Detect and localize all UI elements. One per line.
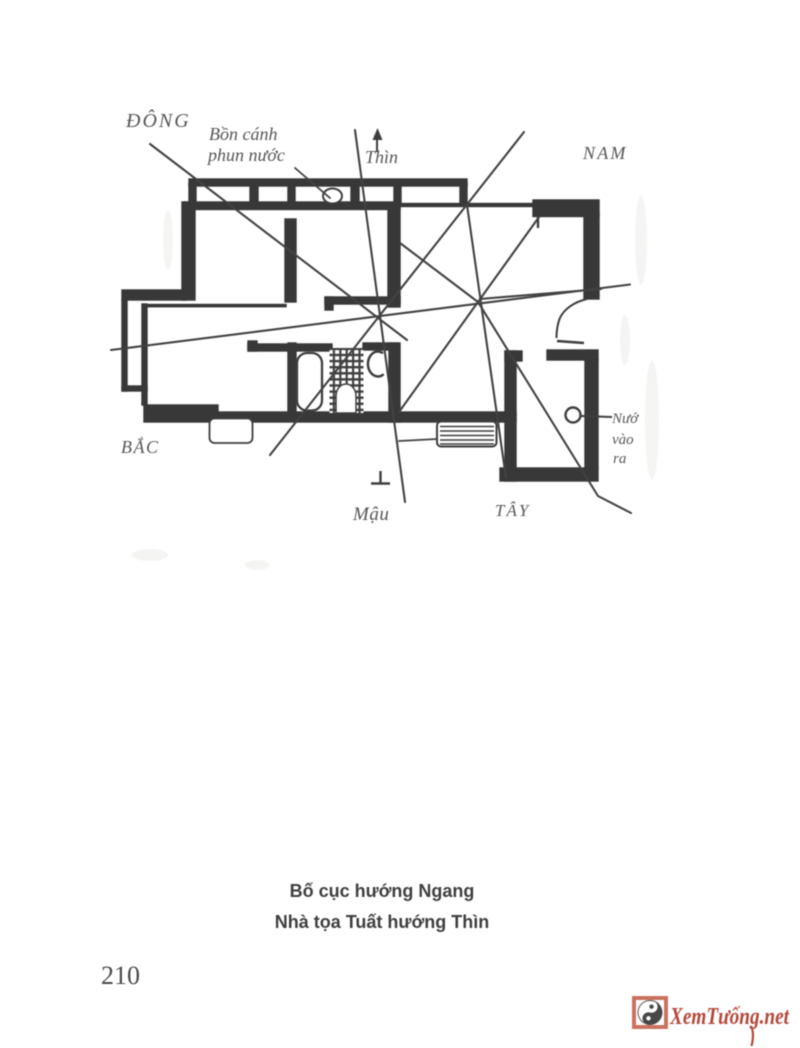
svg-text:ĐÔNG: ĐÔNG [125,108,191,132]
svg-text:TÂY: TÂY [495,501,530,520]
svg-text:BẮC: BẮC [121,436,160,457]
svg-text:XemTưống.net: XemTưống.net [669,1004,790,1030]
svg-text:210: 210 [101,961,140,990]
svg-text:Mậu: Mậu [352,504,389,525]
svg-text:NAM: NAM [582,143,628,163]
svg-text:ra: ra [613,451,626,467]
svg-text:vào: vào [612,432,634,448]
svg-text:phun nước: phun nước [206,145,285,165]
svg-text:Bồn cánh: Bồn cánh [209,124,277,144]
svg-text:Nướ: Nướ [611,411,639,427]
svg-text:Thìn: Thìn [365,147,398,167]
svg-text:Bố cục hướng Ngang: Bố cục hướng Ngang [290,881,475,901]
svg-text:Nhà tọa Tuất hướng Thìn: Nhà tọa Tuất hướng Thìn [275,912,489,932]
